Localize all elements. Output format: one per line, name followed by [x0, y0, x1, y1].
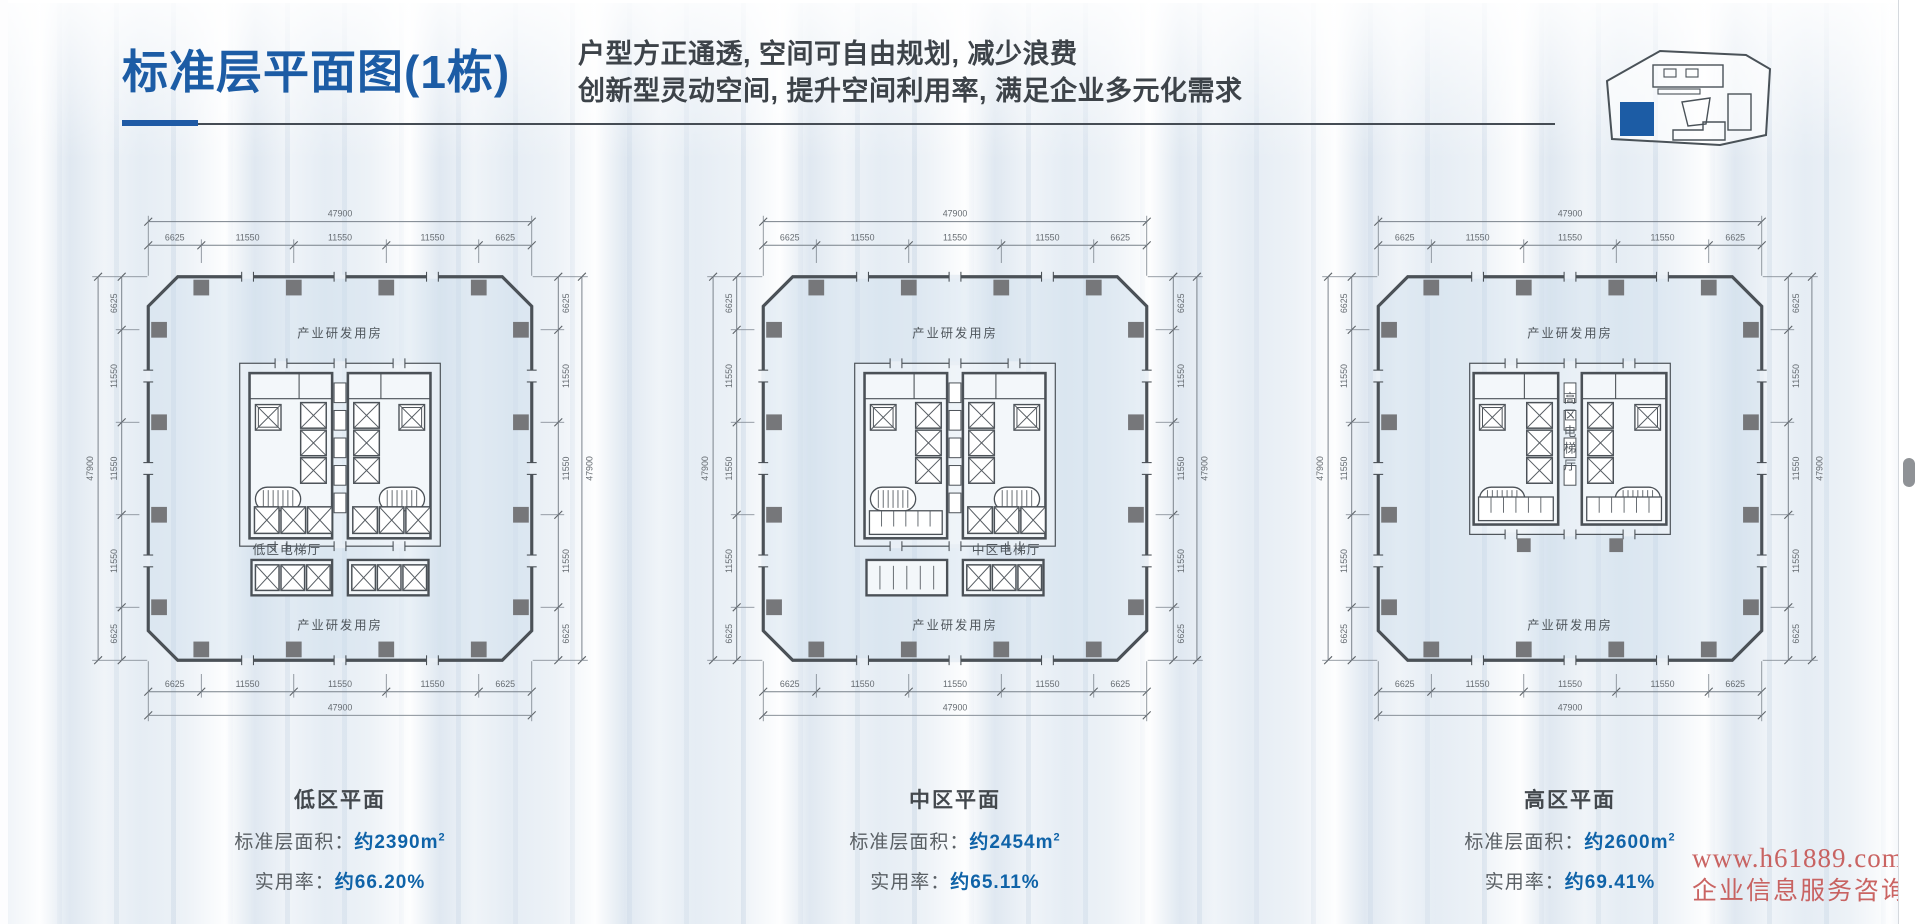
svg-text:6625: 6625	[561, 293, 571, 313]
svg-text:11550: 11550	[724, 549, 734, 573]
svg-text:11550: 11550	[1466, 232, 1490, 242]
svg-text:47900: 47900	[1315, 456, 1325, 481]
page-title: 标准层平面图(1栋)	[122, 36, 510, 102]
svg-text:6625: 6625	[109, 624, 119, 644]
svg-text:11550: 11550	[561, 549, 571, 573]
subtitle-line-1: 户型方正通透, 空间可自由规划, 减少浪费	[578, 36, 1243, 73]
svg-text:6625: 6625	[165, 232, 185, 242]
svg-text:6625: 6625	[561, 624, 571, 644]
svg-text:47900: 47900	[328, 702, 353, 712]
area-value: 约2390m	[354, 832, 438, 853]
svg-text:47900: 47900	[700, 456, 710, 481]
top-edge-strip	[0, 0, 1920, 3]
svg-text:11550: 11550	[236, 232, 260, 242]
plan-column-mid: 4790066251155011550115506625662511550115…	[660, 200, 1250, 894]
title-underline-accent	[122, 120, 198, 126]
svg-text:47900: 47900	[85, 456, 95, 481]
svg-text:6625: 6625	[1395, 232, 1415, 242]
svg-text:11550: 11550	[421, 232, 445, 242]
svg-text:6625: 6625	[1395, 679, 1415, 689]
svg-text:47900: 47900	[328, 209, 353, 219]
area-label: 标准层面积：	[234, 832, 354, 853]
rate-label: 实用率：	[1485, 872, 1565, 893]
floor-plans-row: 4790066251155011550115506625662511550115…	[45, 200, 1865, 894]
plan-name: 低区平面	[234, 784, 445, 814]
svg-text:产业研发用房: 产业研发用房	[1527, 326, 1613, 341]
svg-text:11550: 11550	[421, 679, 445, 689]
svg-text:高区电梯厅: 高区电梯厅	[1564, 391, 1576, 473]
svg-text:11550: 11550	[851, 232, 875, 242]
area-value: 约2600m	[1584, 832, 1668, 853]
area-label: 标准层面积：	[1464, 832, 1584, 853]
svg-text:6625: 6625	[780, 232, 800, 242]
area-sup: 2	[1669, 832, 1676, 844]
svg-text:11550: 11550	[236, 679, 260, 689]
plan-column-high: 4790066251155011550115506625662511550115…	[1275, 200, 1865, 894]
svg-text:47900: 47900	[1558, 702, 1583, 712]
svg-text:6625: 6625	[1725, 232, 1745, 242]
svg-text:6625: 6625	[1791, 624, 1801, 644]
svg-text:11550: 11550	[561, 364, 571, 388]
page-subtitle: 户型方正通透, 空间可自由规划, 减少浪费 创新型灵动空间, 提升空间利用率, …	[578, 36, 1243, 110]
svg-text:11550: 11550	[1176, 549, 1186, 573]
svg-text:47900: 47900	[943, 209, 968, 219]
rate-value: 约66.20%	[335, 872, 425, 893]
svg-text:11550: 11550	[109, 364, 119, 388]
svg-text:11550: 11550	[1339, 549, 1349, 573]
svg-text:6625: 6625	[495, 679, 515, 689]
area-sup: 2	[1054, 832, 1061, 844]
svg-text:47900: 47900	[1815, 456, 1825, 481]
svg-text:11550: 11550	[109, 549, 119, 573]
svg-text:产业研发用房: 产业研发用房	[297, 326, 383, 341]
area-label: 标准层面积：	[849, 832, 969, 853]
svg-text:11550: 11550	[943, 232, 967, 242]
site-keymap	[1598, 40, 1780, 154]
watermark-line-1: www.h61889.com	[1692, 842, 1908, 875]
svg-text:6625: 6625	[1339, 624, 1349, 644]
svg-text:11550: 11550	[1791, 364, 1801, 388]
rate-value: 约69.41%	[1565, 872, 1655, 893]
svg-text:产业研发用房: 产业研发用房	[297, 618, 383, 633]
area-sup: 2	[439, 832, 446, 844]
plan-column-low: 4790066251155011550115506625662511550115…	[45, 200, 635, 894]
svg-text:47900: 47900	[1558, 209, 1583, 219]
svg-text:11550: 11550	[1651, 679, 1675, 689]
floor-plan-high: 4790066251155011550115506625662511550115…	[1275, 200, 1865, 736]
svg-text:11550: 11550	[1176, 456, 1186, 480]
svg-text:11550: 11550	[1036, 232, 1060, 242]
svg-text:11550: 11550	[1558, 679, 1582, 689]
plan-caption-high: 高区平面 标准层面积：约2600m2 实用率：约69.41%	[1464, 784, 1675, 894]
svg-text:11550: 11550	[724, 364, 734, 388]
left-edge-strip	[0, 0, 8, 924]
svg-text:11550: 11550	[851, 679, 875, 689]
watermark-line-2: 企业信息服务咨询	[1692, 875, 1908, 908]
svg-text:6625: 6625	[1725, 679, 1745, 689]
page-background: 标准层平面图(1栋) 户型方正通透, 空间可自由规划, 减少浪费 创新型灵动空间…	[0, 0, 1920, 924]
svg-text:6625: 6625	[109, 293, 119, 313]
rate-label: 实用率：	[255, 872, 335, 893]
scrollbar-track[interactable]	[1898, 0, 1920, 924]
svg-text:11550: 11550	[561, 456, 571, 480]
svg-text:6625: 6625	[1339, 293, 1349, 313]
rate-label: 实用率：	[870, 872, 950, 893]
svg-text:6625: 6625	[780, 679, 800, 689]
svg-text:47900: 47900	[585, 456, 595, 481]
site-keymap-highlight	[1620, 102, 1654, 136]
title-underline	[122, 123, 1555, 125]
svg-text:11550: 11550	[1339, 364, 1349, 388]
rate-value: 约65.11%	[950, 872, 1039, 893]
watermark: www.h61889.com 企业信息服务咨询	[1692, 842, 1908, 908]
svg-text:11550: 11550	[724, 456, 734, 480]
svg-text:6625: 6625	[1110, 679, 1130, 689]
svg-text:6625: 6625	[1176, 624, 1186, 644]
area-value: 约2454m	[969, 832, 1053, 853]
svg-text:11550: 11550	[1466, 679, 1490, 689]
svg-text:6625: 6625	[724, 624, 734, 644]
svg-text:11550: 11550	[109, 456, 119, 480]
svg-text:11550: 11550	[1339, 456, 1349, 480]
svg-text:11550: 11550	[1791, 456, 1801, 480]
svg-text:低区电梯厅: 低区电梯厅	[253, 542, 322, 557]
svg-text:6625: 6625	[165, 679, 185, 689]
floor-plan-mid: 4790066251155011550115506625662511550115…	[660, 200, 1250, 736]
svg-text:11550: 11550	[1651, 232, 1675, 242]
svg-text:11550: 11550	[943, 679, 967, 689]
svg-text:11550: 11550	[328, 232, 352, 242]
svg-text:47900: 47900	[1200, 456, 1210, 481]
svg-text:6625: 6625	[724, 293, 734, 313]
plan-name: 中区平面	[849, 784, 1060, 814]
svg-text:11550: 11550	[1036, 679, 1060, 689]
svg-text:47900: 47900	[943, 702, 968, 712]
svg-text:11550: 11550	[1558, 232, 1582, 242]
svg-text:中区电梯厅: 中区电梯厅	[972, 542, 1041, 557]
svg-text:11550: 11550	[1176, 364, 1186, 388]
svg-text:产业研发用房: 产业研发用房	[912, 618, 998, 633]
svg-text:11550: 11550	[1791, 549, 1801, 573]
plan-caption-low: 低区平面 标准层面积：约2390m2 实用率：约66.20%	[234, 784, 445, 894]
svg-text:产业研发用房: 产业研发用房	[1527, 618, 1613, 633]
svg-text:11550: 11550	[328, 679, 352, 689]
plan-name: 高区平面	[1464, 784, 1675, 814]
plan-caption-mid: 中区平面 标准层面积：约2454m2 实用率：约65.11%	[849, 784, 1060, 894]
svg-text:6625: 6625	[495, 232, 515, 242]
svg-text:产业研发用房: 产业研发用房	[912, 326, 998, 341]
subtitle-line-2: 创新型灵动空间, 提升空间利用率, 满足企业多元化需求	[578, 73, 1243, 110]
svg-text:6625: 6625	[1110, 232, 1130, 242]
svg-text:6625: 6625	[1176, 293, 1186, 313]
floor-plan-low: 4790066251155011550115506625662511550115…	[45, 200, 635, 736]
scrollbar-thumb[interactable]	[1903, 458, 1915, 487]
svg-text:6625: 6625	[1791, 293, 1801, 313]
